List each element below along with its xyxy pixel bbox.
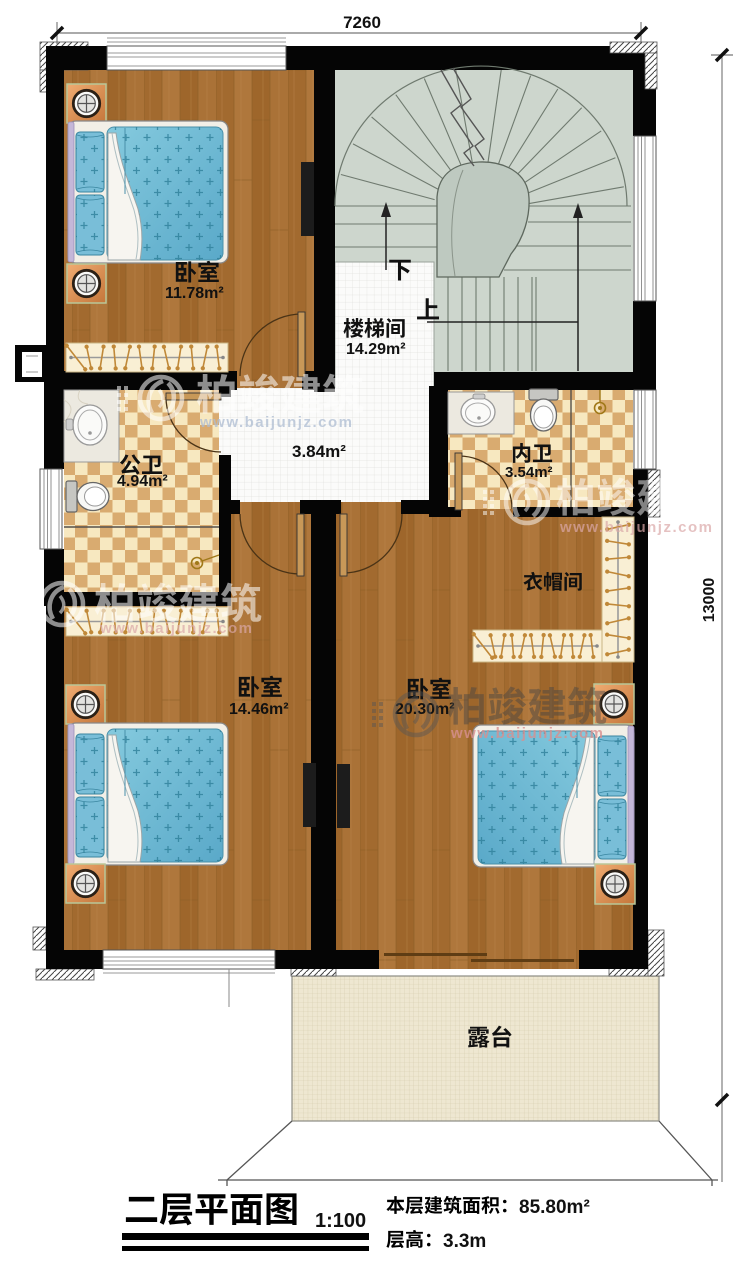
svg-text:4.94m²: 4.94m² — [117, 473, 168, 490]
svg-text:13000: 13000 — [701, 578, 718, 623]
svg-text:7260: 7260 — [343, 13, 381, 32]
svg-text:14.29m²: 14.29m² — [346, 341, 406, 358]
svg-text:1:100: 1:100 — [315, 1210, 366, 1232]
svg-text:www.baijunjz.com: www.baijunjz.com — [559, 519, 713, 536]
svg-text:85.80m²: 85.80m² — [519, 1197, 590, 1218]
svg-text:3.3m: 3.3m — [443, 1231, 486, 1252]
svg-text:3.54m²: 3.54m² — [505, 464, 553, 481]
svg-text:14.46m²: 14.46m² — [229, 701, 289, 718]
svg-text:www.baijunjz.com: www.baijunjz.com — [99, 620, 253, 637]
svg-text:www.baijunjz.com: www.baijunjz.com — [450, 725, 604, 742]
svg-text:3.84m²: 3.84m² — [292, 442, 346, 461]
svg-text:www.baijunjz.com: www.baijunjz.com — [199, 414, 353, 431]
svg-text:11.78m²: 11.78m² — [165, 285, 224, 302]
